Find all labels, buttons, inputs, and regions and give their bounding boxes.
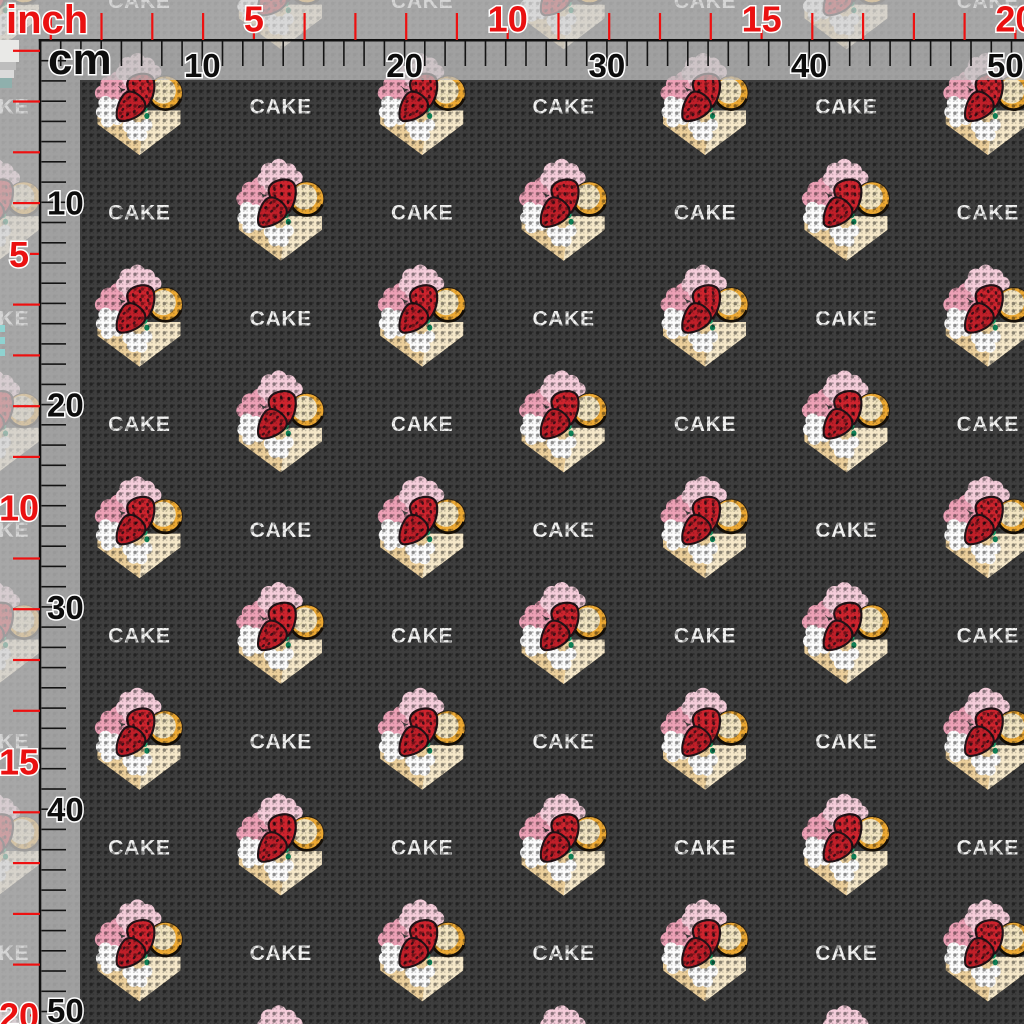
svg-text:20: 20: [0, 995, 39, 1024]
svg-text:30: 30: [589, 47, 626, 84]
svg-text:5: 5: [244, 0, 264, 40]
svg-text:10: 10: [47, 184, 84, 221]
svg-text:5: 5: [9, 234, 29, 275]
svg-text:20: 20: [47, 387, 84, 424]
svg-text:10: 10: [184, 47, 221, 84]
svg-text:20: 20: [995, 0, 1024, 40]
svg-text:30: 30: [47, 589, 84, 626]
svg-text:40: 40: [47, 791, 84, 828]
svg-text:50: 50: [47, 992, 84, 1024]
svg-text:15: 15: [742, 0, 782, 40]
svg-text:cm: cm: [48, 35, 112, 84]
svg-text:10: 10: [488, 0, 528, 40]
svg-text:40: 40: [791, 47, 828, 84]
svg-text:10: 10: [0, 488, 39, 529]
svg-text:15: 15: [0, 742, 39, 783]
svg-text:20: 20: [386, 47, 423, 84]
svg-text:50: 50: [987, 47, 1024, 84]
